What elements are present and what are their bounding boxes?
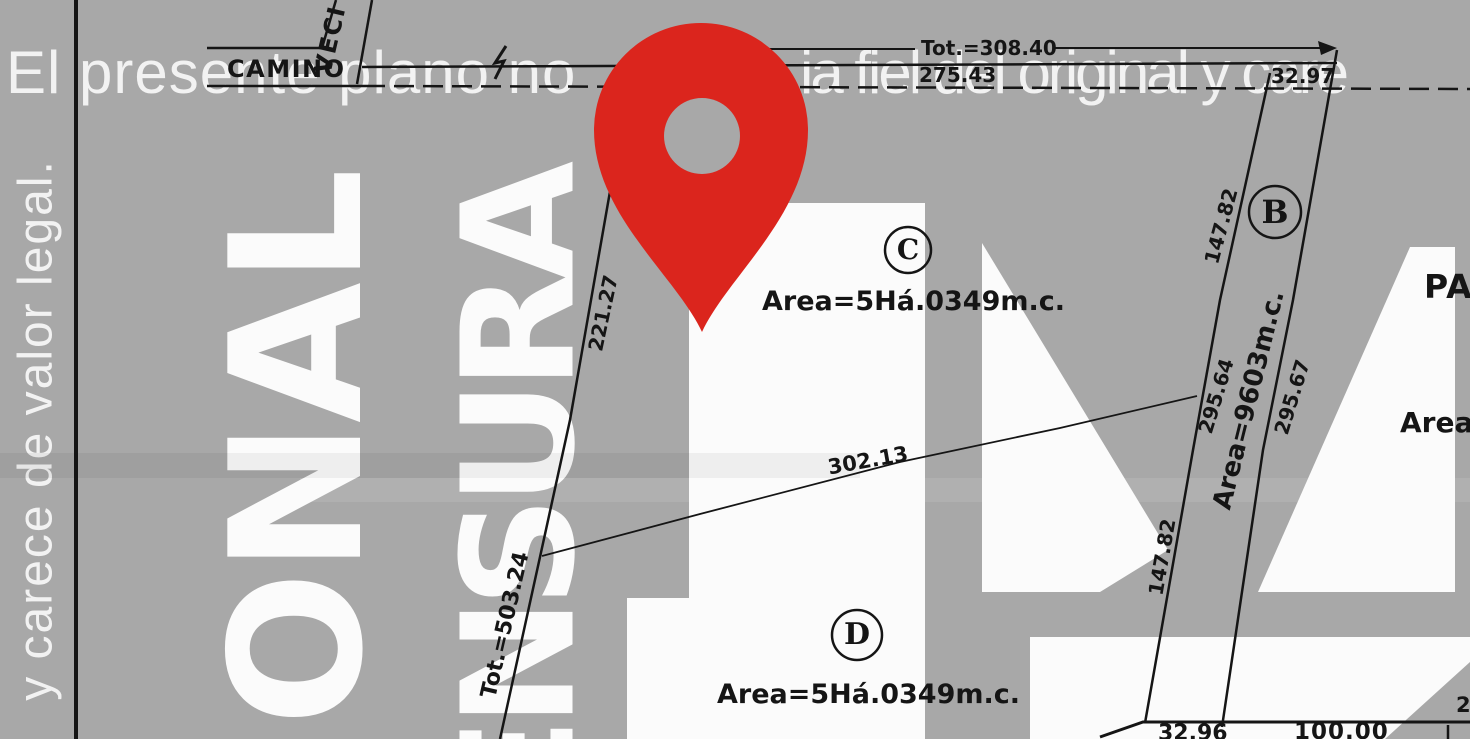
- survey-tick-mark: [495, 46, 506, 79]
- north-solid-boundary-line: [362, 63, 1337, 67]
- west-boundary-line: [500, 64, 640, 739]
- parcel-d-letter: D: [844, 620, 870, 650]
- parcel-b-letter: B: [1261, 196, 1288, 228]
- edge-padron-label: PAD: [1424, 270, 1470, 303]
- cross-parcel-line: [542, 396, 1197, 556]
- scanned-survey-map: IONAL ENSURA y carece de valor legal. El…: [0, 0, 1470, 739]
- dimension-arrowhead: [1318, 41, 1337, 55]
- dim-total-north-label: Tot.=308.40: [921, 38, 1057, 58]
- dim-corner-partial-label: 24: [1456, 695, 1470, 716]
- dim-north-segment1-label: 275.43: [919, 65, 996, 85]
- south-boundary-line: [1100, 722, 1470, 737]
- road-right-edge-line: [357, 0, 372, 84]
- parcel-d-area-label: Area=5Há.0349m.c.: [717, 681, 1020, 708]
- dim-south-segment1-label: 32.96: [1158, 723, 1228, 739]
- edge-area-partial-label: Area=: [1400, 409, 1470, 437]
- dim-south-segment2-label: 100.00: [1294, 721, 1389, 739]
- dim-north-segment2-label: 32.97: [1271, 66, 1334, 86]
- parcel-c-area-label: Area=5Há.0349m.c.: [762, 288, 1065, 315]
- parcel-c-letter: C: [897, 236, 919, 264]
